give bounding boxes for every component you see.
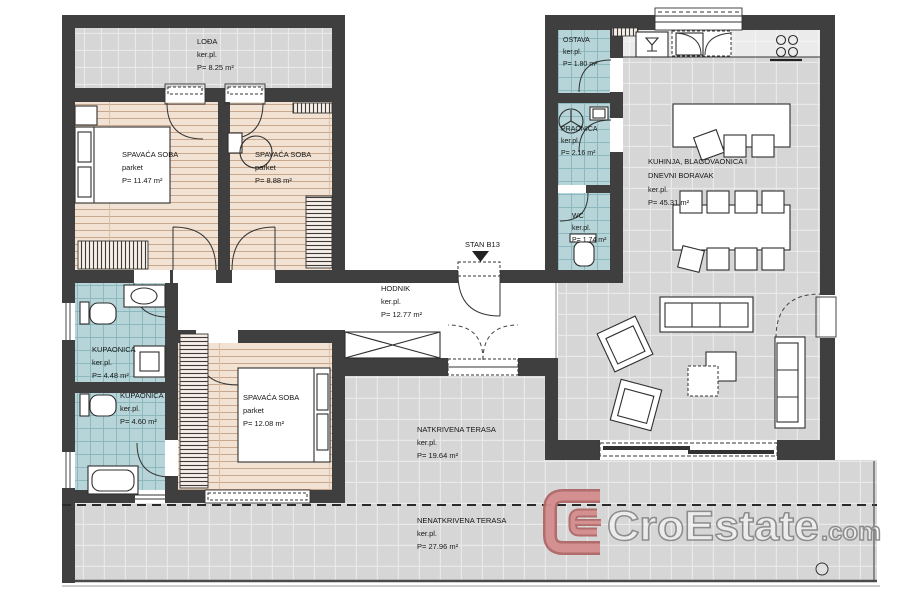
svg-text:OSTAVA: OSTAVA [563,37,590,44]
wardrobe-2a [293,103,332,113]
svg-text:ker.pl.: ker.pl. [120,404,140,413]
svg-text:parket: parket [122,163,144,172]
svg-text:ker.pl.: ker.pl. [561,138,580,145]
entrance-arrow-icon [472,251,489,262]
svg-text:parket: parket [243,406,265,415]
svg-text:ker.pl.: ker.pl. [572,225,591,232]
svg-text:P= 4.60 m²: P= 4.60 m² [120,417,157,426]
terrace-french-door [448,325,518,375]
svg-text:ker.pl.: ker.pl. [381,297,401,306]
bathroom-bottom-window [135,490,165,503]
svg-text:ker.pl.: ker.pl. [197,50,217,59]
bathtub-icon [88,466,138,494]
bathroom-window-2 [62,452,75,488]
chair [762,191,784,213]
svg-text:P= 4.48 m²: P= 4.48 m² [92,371,129,380]
svg-text:DNEVNI BORAVAK: DNEVNI BORAVAK [648,171,714,180]
svg-text:P= 12.77 m²: P= 12.77 m² [381,310,423,319]
svg-text:KUPAONICA: KUPAONICA [92,345,136,354]
room-label-hallway: HODNIK ker.pl. P= 12.77 m² [381,284,423,319]
svg-text:ker.pl.: ker.pl. [92,358,112,367]
nightstand [75,106,97,125]
chair [707,248,729,270]
svg-text:SPAVAĆA SOBA: SPAVAĆA SOBA [255,150,311,159]
svg-text:KUHINJA, BLAGOVAONICA I: KUHINJA, BLAGOVAONICA I [648,157,747,166]
svg-text:PRAONICA: PRAONICA [561,126,598,133]
chair [678,246,705,273]
svg-text:P= 19.64 m²: P= 19.64 m² [417,451,459,460]
bar-chair [752,135,774,157]
wardrobe-3 [180,334,208,488]
sliding-door [600,443,777,456]
toilet-icon [80,394,116,416]
kitchen-sink-icon [636,32,668,57]
drain-icon [816,563,828,575]
bar-chair [724,135,746,157]
svg-text:ker.pl.: ker.pl. [417,529,437,538]
shower-icon [134,346,165,377]
laundry-sink [590,107,608,120]
chair [735,248,757,270]
svg-text:HODNIK: HODNIK [381,284,410,293]
svg-text:SPAVAĆA SOBA: SPAVAĆA SOBA [243,393,299,402]
svg-text:WC: WC [572,213,584,220]
bathroom-window-1 [62,303,75,340]
coffee-table-dashed [688,366,718,396]
entrance-door [458,262,500,316]
svg-text:P= 8.88 m²: P= 8.88 m² [255,176,292,185]
washbasin-icon [124,285,165,307]
svg-text:LOĐA: LOĐA [197,37,217,46]
svg-text:P= 11.47 m²: P= 11.47 m² [122,176,163,185]
svg-text:ker.pl.: ker.pl. [648,185,668,194]
floor-plan-drawing: STAN B13 LOĐA ker.pl. P= 8.25 m² SPAVAĆA… [0,0,900,600]
sofa [660,297,753,332]
svg-text:P= 1.74 m²: P= 1.74 m² [572,237,607,244]
fridge-unit [672,31,731,56]
entrance-marker: STAN B13 [465,240,500,262]
high-window [612,28,638,36]
bed-3 [238,368,330,462]
svg-text:KUPAONICA: KUPAONICA [120,391,164,400]
bedroom3-window [205,490,310,503]
wardrobe-2b [306,196,332,268]
entrance-label: STAN B13 [465,240,500,249]
svg-text:parket: parket [255,163,277,172]
svg-text:NATKRIVENA TERASA: NATKRIVENA TERASA [417,425,496,434]
svg-text:ker.pl.: ker.pl. [563,49,582,56]
chair [735,191,757,213]
logo-brand-text: CroEstate [607,502,819,549]
svg-text:P= 1.80 m²: P= 1.80 m² [563,61,598,68]
kitchen-window [655,8,742,30]
svg-text:P= 8.25 m²: P= 8.25 m² [197,63,234,72]
svg-text:P= 2.16 m²: P= 2.16 m² [561,150,596,157]
svg-text:SPAVAĆA SOBA: SPAVAĆA SOBA [122,150,178,159]
svg-text:ker.pl.: ker.pl. [417,438,437,447]
logo-tld-text: .com [821,518,881,546]
svg-text:NENATKRIVENA TERASA: NENATKRIVENA TERASA [417,516,506,525]
chair [762,248,784,270]
svg-text:P= 12.08 m²: P= 12.08 m² [243,419,285,428]
svg-text:P= 27.96 m²: P= 27.96 m² [417,542,459,551]
svg-text:P= 45.31 m²: P= 45.31 m² [648,198,690,207]
toilet-icon [80,302,116,324]
side-sofa [775,337,805,428]
wardrobe-1 [78,241,148,269]
chair [707,191,729,213]
floor-plan-page: STAN B13 LOĐA ker.pl. P= 8.25 m² SPAVAĆA… [0,0,900,600]
hallway-wardrobe [345,332,440,358]
